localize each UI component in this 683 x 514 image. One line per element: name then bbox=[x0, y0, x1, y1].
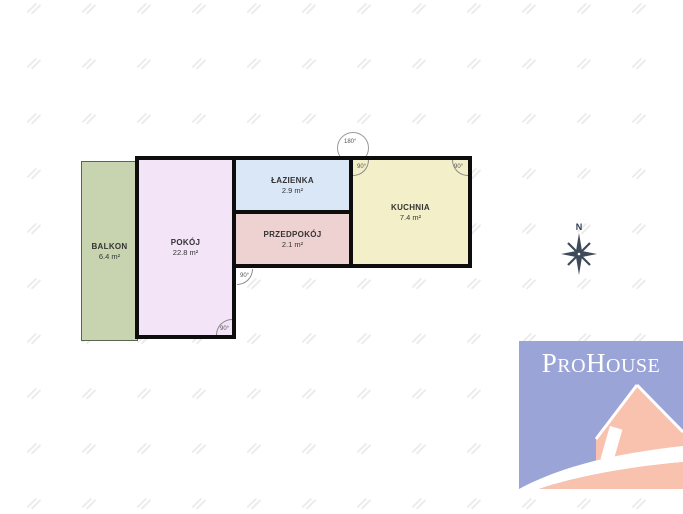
watermark-tile bbox=[25, 0, 45, 19]
watermark-tile bbox=[410, 274, 430, 294]
watermark-tile bbox=[355, 0, 375, 19]
watermark-tile bbox=[465, 329, 485, 349]
watermark-tile bbox=[355, 329, 375, 349]
watermark-tile bbox=[630, 164, 650, 184]
watermark-tile bbox=[245, 384, 265, 404]
watermark-tile bbox=[355, 109, 375, 129]
watermark-tile bbox=[80, 0, 100, 19]
watermark-tile bbox=[355, 439, 375, 459]
watermark-tile bbox=[520, 219, 540, 239]
room-balkon: BALKON 6.4 m² bbox=[81, 161, 138, 341]
watermark-tile bbox=[410, 494, 430, 514]
watermark-tile bbox=[25, 494, 45, 514]
angle-label-90-hall-bl: 90° bbox=[240, 273, 249, 280]
watermark-tile bbox=[520, 0, 540, 19]
room-lazienka-label: ŁAZIENKA bbox=[271, 176, 314, 186]
watermark-tile bbox=[630, 274, 650, 294]
watermark-tile bbox=[25, 439, 45, 459]
prohouse-logo-graphic: PROHOUSE bbox=[519, 341, 683, 489]
room-przedpokoj-label: PRZEDPOKÓJ bbox=[263, 230, 321, 240]
room-pokoj-label: POKÓJ bbox=[171, 238, 201, 248]
watermark-tile bbox=[300, 329, 320, 349]
compass-north-label: N bbox=[557, 222, 601, 232]
watermark-tile bbox=[465, 109, 485, 129]
room-lazienka: ŁAZIENKA 2.9 m² bbox=[232, 156, 353, 214]
watermark-tile bbox=[190, 494, 210, 514]
watermark-tile bbox=[190, 439, 210, 459]
watermark-tile bbox=[300, 384, 320, 404]
watermark-tile bbox=[135, 384, 155, 404]
watermark-tile bbox=[25, 164, 45, 184]
watermark-tile bbox=[245, 109, 265, 129]
room-kuchnia: KUCHNIA 7.4 m² bbox=[349, 156, 472, 268]
watermark-tile bbox=[245, 329, 265, 349]
watermark-tile bbox=[135, 109, 155, 129]
room-balkon-label: BALKON bbox=[91, 242, 127, 252]
room-kuchnia-label: KUCHNIA bbox=[391, 203, 430, 213]
watermark-tile bbox=[25, 219, 45, 239]
watermark-tile bbox=[355, 494, 375, 514]
prohouse-logo: PROHOUSE bbox=[519, 341, 683, 489]
room-przedpokoj: PRZEDPOKÓJ 2.1 m² bbox=[232, 210, 353, 268]
watermark-tile bbox=[630, 54, 650, 74]
watermark-tile bbox=[300, 439, 320, 459]
watermark-tile bbox=[575, 54, 595, 74]
watermark-tile bbox=[520, 494, 540, 514]
watermark-tile bbox=[190, 0, 210, 19]
watermark-tile bbox=[630, 219, 650, 239]
watermark-tile bbox=[300, 54, 320, 74]
watermark-tile bbox=[410, 384, 430, 404]
watermark-tile bbox=[410, 439, 430, 459]
watermark-tile bbox=[465, 54, 485, 74]
watermark-tile bbox=[465, 274, 485, 294]
watermark-tile bbox=[300, 494, 320, 514]
watermark-tile bbox=[575, 0, 595, 19]
watermark-tile bbox=[575, 164, 595, 184]
watermark-tile bbox=[25, 274, 45, 294]
watermark-tile bbox=[520, 109, 540, 129]
watermark-tile bbox=[355, 54, 375, 74]
watermark-tile bbox=[355, 384, 375, 404]
room-pokoj-area: 22.8 m² bbox=[173, 248, 198, 257]
watermark-tile bbox=[410, 0, 430, 19]
watermark-tile bbox=[410, 329, 430, 349]
watermark-tile bbox=[630, 494, 650, 514]
watermark-tile bbox=[575, 494, 595, 514]
angle-label-90-kitchen-tr: 90° bbox=[454, 164, 463, 171]
watermark-tile bbox=[465, 439, 485, 459]
watermark-tile bbox=[190, 384, 210, 404]
room-kuchnia-area: 7.4 m² bbox=[400, 213, 421, 222]
watermark-tile bbox=[355, 274, 375, 294]
room-balkon-area: 6.4 m² bbox=[99, 252, 120, 261]
watermark-tile bbox=[465, 384, 485, 404]
watermark-tile bbox=[465, 494, 485, 514]
watermark-tile bbox=[245, 54, 265, 74]
watermark-tile bbox=[630, 0, 650, 19]
watermark-tile bbox=[520, 274, 540, 294]
angle-label-180: 180° bbox=[344, 139, 356, 146]
room-przedpokoj-area: 2.1 m² bbox=[282, 240, 303, 249]
watermark-tile bbox=[135, 0, 155, 19]
watermark-tile bbox=[520, 54, 540, 74]
watermark-tile bbox=[630, 109, 650, 129]
angle-label-90-room-br: 90° bbox=[220, 326, 229, 333]
watermark-tile bbox=[80, 384, 100, 404]
watermark-tile bbox=[135, 494, 155, 514]
watermark-tile bbox=[520, 164, 540, 184]
watermark-tile bbox=[190, 109, 210, 129]
watermark-tile bbox=[300, 274, 320, 294]
watermark-tile bbox=[245, 439, 265, 459]
watermark-tile bbox=[80, 54, 100, 74]
watermark-tile bbox=[300, 0, 320, 19]
watermark-tile bbox=[25, 54, 45, 74]
watermark-tile bbox=[190, 54, 210, 74]
watermark-tile bbox=[465, 0, 485, 19]
watermark-tile bbox=[25, 384, 45, 404]
watermark-tile bbox=[80, 109, 100, 129]
watermark-tile bbox=[135, 439, 155, 459]
watermark-tile bbox=[245, 494, 265, 514]
room-pokoj: POKÓJ 22.8 m² bbox=[135, 156, 236, 339]
watermark-tile bbox=[135, 54, 155, 74]
watermark-tile bbox=[300, 109, 320, 129]
watermark-tile bbox=[410, 109, 430, 129]
room-lazienka-area: 2.9 m² bbox=[282, 186, 303, 195]
watermark-tile bbox=[80, 439, 100, 459]
watermark-tile bbox=[245, 0, 265, 19]
compass-rose: N bbox=[557, 222, 601, 284]
watermark-tile bbox=[575, 109, 595, 129]
compass-star-icon bbox=[559, 232, 599, 276]
watermark-tile bbox=[25, 109, 45, 129]
angle-label-90-kitchen-tl: 90° bbox=[357, 164, 366, 171]
watermark-tile bbox=[25, 329, 45, 349]
watermark-tile bbox=[410, 54, 430, 74]
watermark-tile bbox=[80, 494, 100, 514]
